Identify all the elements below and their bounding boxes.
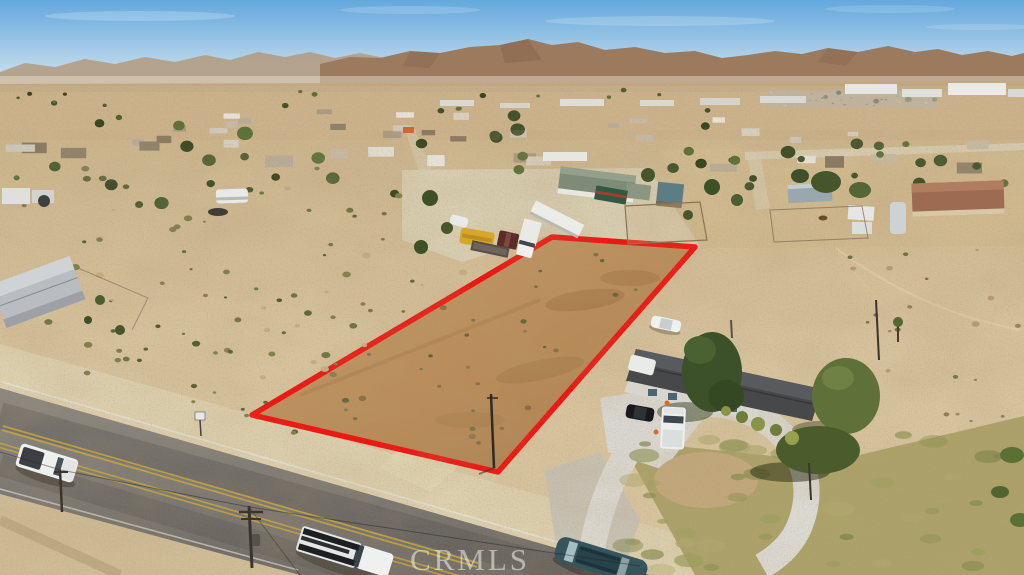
corral-fence <box>625 202 707 244</box>
watermark-text: CRMLS <box>410 542 530 575</box>
warehouse <box>902 89 942 97</box>
transformer <box>252 534 260 546</box>
bed <box>662 429 683 447</box>
sign-post <box>200 420 201 436</box>
shrub <box>736 411 748 423</box>
cloud <box>45 11 235 21</box>
warehouse <box>700 98 740 105</box>
cloud <box>545 16 775 26</box>
wing-roof <box>625 183 651 201</box>
window <box>668 393 677 400</box>
hood <box>664 408 684 415</box>
tree <box>731 194 743 206</box>
windshield <box>663 415 683 423</box>
shrub <box>751 417 765 431</box>
shrub <box>721 406 731 416</box>
long-trailer <box>543 152 587 161</box>
tree <box>704 179 720 195</box>
dark-debris <box>208 208 228 216</box>
glass <box>633 406 647 420</box>
traffic-cone <box>654 430 659 435</box>
silver-rv <box>890 202 906 234</box>
tree <box>641 168 655 182</box>
body <box>216 188 248 203</box>
warehouse <box>760 96 806 103</box>
cloud <box>825 5 955 13</box>
tree-highlight <box>822 366 854 390</box>
metal-shed <box>848 205 875 221</box>
tree <box>849 182 871 198</box>
driveway-pickup <box>660 406 686 449</box>
building <box>440 100 474 106</box>
bush <box>95 295 105 305</box>
tree <box>683 210 693 220</box>
top-right-house <box>912 180 1005 216</box>
bush <box>84 316 92 324</box>
bush <box>1000 447 1024 463</box>
traffic-cone <box>665 401 670 406</box>
warehouse <box>948 83 1006 95</box>
bush <box>991 486 1009 498</box>
scene-svg: CRMLS <box>0 0 1024 575</box>
water-tank <box>38 195 50 207</box>
warehouse <box>560 99 604 106</box>
shipping-container <box>403 127 414 133</box>
warehouse <box>640 100 674 106</box>
metal-shed <box>852 222 872 234</box>
joshua-tree-top <box>893 317 903 327</box>
road-sign <box>195 412 205 420</box>
warehouse <box>845 84 897 94</box>
shrub <box>785 431 799 445</box>
basketball-hoop <box>731 320 732 338</box>
building <box>500 103 530 108</box>
tree <box>414 240 428 254</box>
dirt-speckle-texture <box>0 84 1024 575</box>
cloud <box>340 6 480 14</box>
shrub <box>770 424 782 436</box>
horse <box>819 216 828 221</box>
rv-trailer <box>216 188 248 203</box>
shed <box>2 188 30 204</box>
tree <box>422 190 438 206</box>
aerial-photo: CRMLS <box>0 0 1024 575</box>
tree <box>791 169 809 183</box>
tree <box>811 171 841 193</box>
tree-highlight <box>684 336 716 364</box>
warehouse <box>1008 89 1024 97</box>
bush <box>115 325 125 335</box>
window <box>648 389 657 396</box>
